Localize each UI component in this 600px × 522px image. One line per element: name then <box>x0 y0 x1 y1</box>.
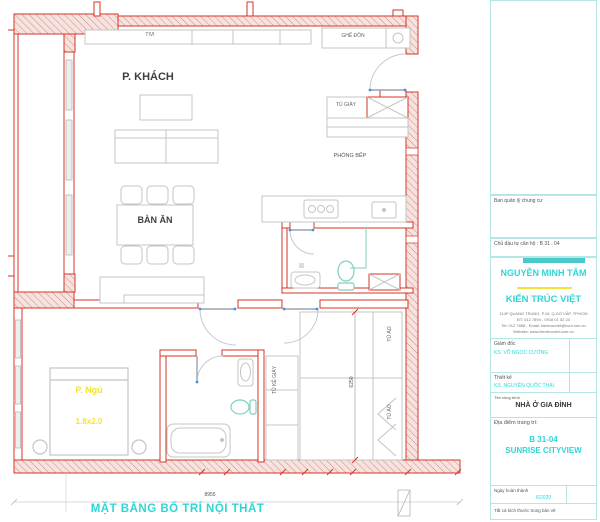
bedroom-door-icon <box>199 308 237 345</box>
tv-cabinet <box>85 30 311 44</box>
note-text: Tất cả kích thước trong bản vẽ <box>494 508 556 513</box>
company-cell: NGUYỄN MINH TÂM KIẾN TRÚC VIỆT 114F QUAN… <box>490 257 597 340</box>
designer-name: KS. NGUYỄN QUỐC THÁI <box>494 383 554 389</box>
yellow-rule <box>517 287 572 289</box>
shoe-cabinet-label: TỦ GIÀY <box>326 103 366 109</box>
project-label: Tên công trình <box>494 395 520 400</box>
teal-bar <box>523 258 585 263</box>
project-cell: Tên công trình NHÀ Ở GIA ĐÌNH <box>490 392 597 419</box>
bathroom2-fixtures <box>167 359 256 457</box>
location-label: Địa điểm trang trí: <box>494 420 538 426</box>
title-block: Ban quản lý chung cư Chủ đầu tư căn hộ :… <box>490 0 597 518</box>
toilet-icon <box>338 261 354 290</box>
tv-label: TIVI <box>130 33 170 39</box>
cooktop-icon <box>304 200 338 218</box>
entry-door-icon <box>369 54 407 91</box>
corner-symbol-icon <box>398 490 410 516</box>
vanity-sink-icon <box>291 272 320 288</box>
nightstand-right <box>132 440 146 454</box>
bedroom-label: P. Ngủ <box>54 386 124 396</box>
bathroom2-door-icon <box>196 356 223 383</box>
director-cell: Giám đốc KS. VÕ NGỌC CƯỜNG <box>490 338 597 374</box>
designer-label: Thiết kế <box>494 375 512 381</box>
management-label: Ban quản lý chung cư <box>494 198 543 204</box>
wardrobe-top-label: TỦ ÁO <box>387 314 393 354</box>
investor-label: Chủ đầu tư căn hộ : B 31 . 04 <box>494 241 560 247</box>
bed <box>50 368 128 455</box>
shoe-shelf-label: TỦ KỆ GIÀY <box>272 350 278 410</box>
stool-icon <box>393 33 403 43</box>
sideboard <box>100 277 204 303</box>
director-cell-divider <box>569 339 570 373</box>
director-name: KS. VÕ NGỌC CƯỜNG <box>494 350 548 356</box>
company-name: KIẾN TRÚC VIỆT <box>491 294 596 305</box>
bathroom1-door-icon <box>289 229 315 254</box>
investor-cell: Chủ đầu tư căn hộ : B 31 . 04 <box>490 238 597 257</box>
date-cell-divider <box>566 486 567 504</box>
date-label: Ngày hoàn thành <box>494 488 528 493</box>
director-label: Giám đốc <box>494 341 515 347</box>
kitchen-label: PHÒNG BẾP <box>315 153 385 159</box>
location-unit: B 31-04 <box>491 435 596 444</box>
bathtub-icon <box>167 424 230 457</box>
living-room-label: P. KHÁCH <box>103 71 193 83</box>
title-block-empty-cell <box>490 0 597 195</box>
washer-box <box>369 274 400 290</box>
date-value: 6/2020 <box>491 495 596 501</box>
sofa <box>115 130 218 163</box>
client-name: NGUYỄN MINH TÂM <box>491 268 596 278</box>
bedroom-furniture <box>33 368 146 455</box>
wardrobe-area <box>266 312 402 460</box>
shower-partition <box>350 228 366 268</box>
coffee-table <box>140 95 192 120</box>
stool-label: GHẾ ĐÔN <box>323 34 383 40</box>
company-website-line: Website: www.kientrucviet.com.vn <box>491 329 596 335</box>
width-dimension-label: 8955 <box>190 493 230 499</box>
shoe-cabinet-x <box>367 97 408 118</box>
designer-cell: Thiết kế KS. NGUYỄN QUỐC THÁI <box>490 372 597 394</box>
shoe-shelf-cabinet <box>266 356 298 460</box>
date-cell: Ngày hoàn thành 6/2020 <box>490 485 597 505</box>
kitchen-counter <box>262 196 406 222</box>
entry-furniture <box>322 28 410 137</box>
drawing-sheet: TIVI P. KHÁCH BÀN ĂN GHẾ ĐÔN TỦ GIÀY PHÒ… <box>0 0 600 522</box>
floor-drain <box>299 263 304 268</box>
nightstand-left <box>33 440 47 454</box>
bathroom1-fixtures <box>291 228 400 290</box>
entry-counter <box>327 118 408 137</box>
bath2-toilet-icon <box>231 400 256 414</box>
designer-cell-divider <box>569 373 570 393</box>
bed-size-label: 1.8x2.0 <box>54 418 124 427</box>
location-building: SUNRISE CITYVIEW <box>491 446 596 455</box>
kitchen-sink-icon <box>372 202 396 218</box>
dining-table-label: BÀN ĂN <box>115 216 195 226</box>
location-cell: Địa điểm trang trí: B 31-04 SUNRISE CITY… <box>490 417 597 487</box>
drawing-title: MẶT BẰNG BỐ TRÍ NỘI THẤT <box>90 503 265 516</box>
wardrobe-bottom-label: TỦ ÁO <box>387 392 393 432</box>
bath2-sink-icon <box>238 359 253 386</box>
management-cell: Ban quản lý chung cư <box>490 195 597 238</box>
note-cell: Tất cả kích thước trong bản vẽ <box>490 503 597 520</box>
side-dimension-label: 6250 <box>349 362 355 402</box>
project-name: NHÀ Ở GIA ĐÌNH <box>491 402 596 409</box>
